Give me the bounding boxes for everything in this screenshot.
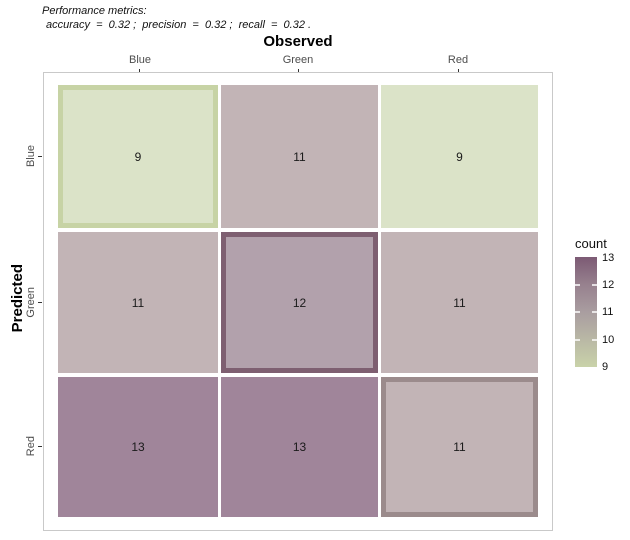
legend-title: count (575, 236, 607, 251)
y-tick-label-red: Red (23, 411, 38, 481)
y-tick-label-blue: Blue (23, 121, 38, 191)
y-tick-mark (38, 156, 42, 157)
caption-line-2: accuracy = 0.32 ; precision = 0.32 ; rec… (46, 18, 311, 32)
cell-red-blue: 13 (58, 377, 218, 517)
cell-green-green: 12 (221, 232, 378, 373)
colorbar-tick (575, 284, 580, 286)
cell-blue-green: 11 (221, 85, 378, 228)
cell-red-red: 11 (381, 377, 538, 517)
cell-blue-red: 9 (381, 85, 538, 228)
x-tick-label-red: Red (418, 54, 498, 66)
legend-label-10: 10 (602, 334, 614, 346)
plot-window: Performance metrics: accuracy = 0.32 ; p… (0, 0, 630, 540)
x-tick-label-blue: Blue (100, 54, 180, 66)
x-axis-title: Observed (43, 33, 553, 50)
cell-red-green: 13 (221, 377, 378, 517)
colorbar-tick (592, 339, 597, 341)
legend-label-13: 13 (602, 252, 614, 264)
y-tick-label-green: Green (23, 267, 38, 337)
colorbar-tick (592, 284, 597, 286)
cell-green-red: 11 (381, 232, 538, 373)
cell-blue-blue: 9 (58, 85, 218, 228)
legend-label-11: 11 (602, 306, 613, 318)
colorbar-tick (575, 311, 580, 313)
caption-line-1: Performance metrics: (42, 4, 147, 18)
cell-green-blue: 11 (58, 232, 218, 373)
y-tick-mark (38, 302, 42, 303)
colorbar-tick (592, 311, 597, 313)
x-tick-label-green: Green (258, 54, 338, 66)
legend-colorbar (575, 257, 597, 367)
legend-label-9: 9 (602, 361, 608, 373)
y-tick-mark (38, 446, 42, 447)
plot-panel: 9 11 9 11 12 11 13 13 11 (43, 72, 553, 531)
legend-label-12: 12 (602, 279, 614, 291)
colorbar-tick (575, 339, 580, 341)
